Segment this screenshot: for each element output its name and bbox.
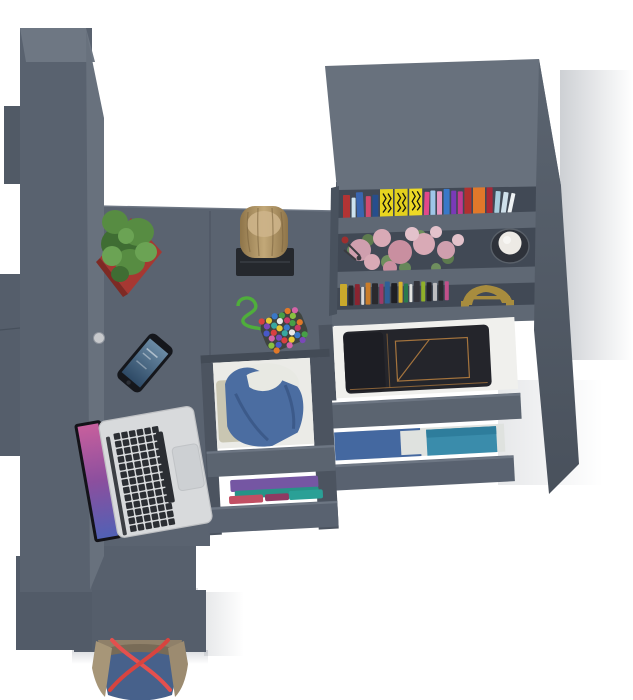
key-ring	[357, 256, 362, 261]
keyboard-key	[155, 489, 162, 496]
keyboard-key	[134, 461, 141, 468]
keyboard-key	[165, 503, 172, 510]
book-spine	[437, 191, 442, 215]
keyboard-key	[125, 502, 132, 509]
book-spine	[473, 184, 485, 214]
rose-bloom	[364, 254, 380, 270]
eiffel-leg	[461, 301, 469, 307]
book-spine	[395, 187, 408, 217]
book-spine	[409, 284, 412, 302]
cactus-pad	[102, 246, 122, 266]
keyboard-key	[156, 496, 163, 503]
wardrobe-drawers-open	[312, 315, 525, 497]
white-clothes	[400, 430, 427, 455]
keyboard-key	[147, 490, 154, 497]
cactus-pad	[111, 266, 129, 282]
keyboard-key	[150, 505, 157, 512]
keyboard-key	[138, 436, 145, 443]
book-spine	[379, 284, 383, 304]
keyboard-key	[138, 484, 145, 491]
candle-highlight	[503, 236, 511, 244]
keyboard-key	[132, 493, 139, 500]
book-spine	[348, 286, 353, 306]
shadow-right-of-column	[204, 592, 244, 656]
keyboard-key	[139, 444, 146, 451]
keyboard-key	[141, 499, 148, 506]
book-spine	[427, 282, 432, 301]
keyboard-key	[122, 439, 129, 446]
eiffel-leg	[506, 300, 514, 306]
book-spine	[404, 283, 408, 302]
book-spine	[444, 189, 450, 215]
bag-denim-front	[100, 652, 180, 700]
keyboard-key	[158, 504, 165, 511]
wardrobe-door-knob[interactable]	[94, 333, 105, 344]
keyboard-key	[145, 522, 152, 529]
keyboard-key	[153, 521, 160, 528]
folded-clothes	[265, 493, 289, 501]
book-spine	[487, 187, 493, 213]
keyboard-key	[117, 456, 124, 463]
keyboard-key	[135, 468, 142, 475]
keyboard-key	[136, 429, 143, 436]
candle-ball	[499, 232, 522, 255]
keyboard-key	[119, 463, 126, 470]
red-berry	[342, 237, 349, 244]
keyboard-key	[127, 509, 134, 516]
keyboard-key	[148, 450, 155, 457]
rose-bloom	[373, 229, 391, 247]
folded-clothes	[289, 489, 323, 500]
keyboard-key	[151, 466, 158, 473]
book-spine	[361, 287, 364, 305]
keyboard-key	[144, 427, 151, 434]
keyboard-key	[130, 525, 137, 532]
book-spine	[352, 198, 356, 219]
shadow-right-of-shelf	[560, 70, 633, 360]
log-top-face	[247, 211, 281, 237]
book-spine	[458, 191, 463, 214]
keyboard-key	[144, 475, 151, 482]
desk-drawers-open	[199, 349, 338, 536]
keyboard-key	[130, 438, 137, 445]
book-spine	[372, 283, 378, 304]
keyboard-key	[136, 516, 143, 523]
book-spine	[433, 283, 437, 301]
book-spine	[409, 185, 422, 216]
book-spine	[366, 283, 371, 305]
keyboard-key	[133, 453, 140, 460]
furniture-render	[0, 0, 633, 700]
cactus-pad	[118, 228, 134, 244]
keyboard-key	[116, 448, 123, 455]
keyboard-key	[129, 477, 136, 484]
keyboard-key	[167, 510, 174, 517]
keyboard-key	[133, 500, 140, 507]
keyboard-key	[131, 445, 138, 452]
rose-bloom	[388, 240, 412, 264]
book-spine	[391, 283, 397, 303]
candle	[491, 229, 529, 263]
log-stool	[236, 206, 294, 276]
keyboard-key	[137, 523, 144, 530]
keyboard-key	[125, 454, 132, 461]
keyboard-key	[121, 431, 128, 438]
keyboard-key	[115, 440, 122, 447]
keyboard-key	[128, 470, 135, 477]
rose-bloom	[437, 241, 455, 259]
keyboard-key	[130, 485, 137, 492]
keyboard-key	[160, 519, 167, 526]
rose-bloom	[430, 226, 442, 238]
book-spine	[399, 282, 403, 303]
book-spine	[414, 281, 420, 302]
folded-jeans	[343, 324, 492, 394]
keyboard-key	[124, 447, 131, 454]
keyboard-key	[149, 498, 156, 505]
keyboard-key	[121, 479, 128, 486]
book-spine	[372, 195, 378, 218]
keyboard-key	[140, 452, 147, 459]
rose-bloom	[405, 227, 419, 241]
laptop[interactable]	[74, 404, 213, 543]
keyboard-key	[143, 467, 150, 474]
keyboard-key	[124, 494, 131, 501]
keyboard-key	[129, 430, 136, 437]
keyboard-key	[153, 481, 160, 488]
book-spine	[356, 192, 364, 218]
keyboard-key	[147, 443, 154, 450]
keyboard-key	[149, 458, 156, 465]
book-spine	[438, 281, 443, 301]
keyboard-key	[146, 482, 153, 489]
book-spine	[355, 284, 360, 305]
book-spine	[385, 282, 390, 304]
book-spine	[421, 282, 425, 302]
book-spine	[424, 192, 430, 216]
bookshelf-top-face	[325, 59, 561, 190]
keyboard-key	[142, 459, 149, 466]
keyboard-key	[126, 462, 133, 469]
keyboard-key	[152, 473, 159, 480]
keyboard-key	[142, 507, 149, 514]
wardrobe-top-face	[20, 28, 95, 62]
book-spine	[340, 284, 347, 306]
keyboard-key	[168, 518, 175, 525]
keyboard-key	[139, 491, 146, 498]
keyboard-key	[144, 514, 151, 521]
keyboard-key	[135, 508, 142, 515]
book-spine	[343, 195, 350, 219]
book-spine	[366, 196, 371, 218]
keyboard-key	[120, 471, 127, 478]
book-spine	[451, 191, 456, 215]
cactus-pad	[135, 242, 157, 262]
scene-canvas	[0, 0, 633, 700]
keyboard-key	[128, 517, 135, 524]
book-spine	[464, 187, 471, 214]
book-spine	[430, 190, 435, 215]
jeans-fold	[343, 332, 386, 392]
keyboard-key	[113, 433, 120, 440]
keyboard-key	[137, 476, 144, 483]
keyboard-key	[151, 513, 158, 520]
book-spine	[445, 281, 449, 300]
keyboard-key	[123, 486, 130, 493]
eiffel-crossbar	[466, 296, 510, 299]
book-spine	[380, 188, 393, 218]
keyboard-key	[145, 435, 152, 442]
rose-bloom	[452, 234, 464, 246]
keyboard-key	[159, 512, 166, 519]
wardrobe-front-slab	[20, 28, 92, 592]
